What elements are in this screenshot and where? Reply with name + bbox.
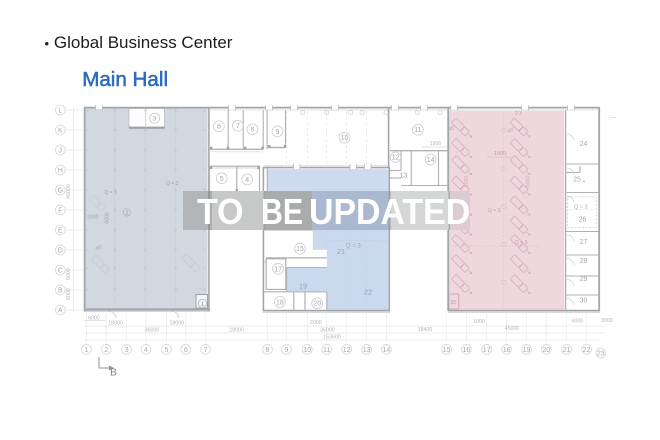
svg-text:E: E — [58, 228, 63, 235]
svg-text:24: 24 — [580, 141, 588, 148]
svg-text:G: G — [58, 188, 63, 195]
svg-text:1000: 1000 — [473, 319, 485, 325]
svg-text:10: 10 — [303, 347, 311, 354]
svg-text:Q = 3: Q = 3 — [105, 190, 118, 196]
svg-text:20: 20 — [313, 301, 321, 308]
svg-text:F: F — [58, 208, 62, 215]
svg-text:Q = 3: Q = 3 — [515, 240, 528, 246]
svg-text:15: 15 — [296, 246, 304, 253]
svg-text:10: 10 — [341, 135, 349, 142]
svg-text:6000: 6000 — [66, 288, 72, 300]
svg-text:3000: 3000 — [601, 318, 613, 324]
svg-text:9: 9 — [285, 347, 289, 354]
svg-text:29: 29 — [580, 276, 588, 283]
svg-text:D: D — [58, 248, 63, 255]
svg-text:B: B — [58, 288, 63, 295]
svg-text:30: 30 — [580, 298, 588, 305]
svg-text:2: 2 — [104, 347, 108, 354]
svg-text:Q = 3: Q = 3 — [166, 181, 179, 187]
svg-text:20: 20 — [542, 347, 550, 354]
svg-text:2 3: 2 3 — [515, 111, 522, 117]
svg-text:8: 8 — [251, 127, 255, 134]
svg-text:2: 2 — [125, 211, 128, 217]
svg-text:14: 14 — [383, 347, 391, 354]
svg-text:6000: 6000 — [88, 316, 100, 322]
svg-text:6000: 6000 — [66, 268, 72, 280]
svg-text:19: 19 — [299, 282, 307, 291]
svg-text:21: 21 — [563, 347, 571, 354]
svg-text:45000: 45000 — [505, 326, 520, 332]
svg-text:18000: 18000 — [169, 321, 184, 327]
svg-text:4: 4 — [245, 177, 249, 184]
svg-text:6000: 6000 — [464, 176, 470, 187]
svg-text:2000: 2000 — [87, 215, 99, 221]
svg-text:1: 1 — [201, 301, 205, 308]
svg-text:18: 18 — [503, 347, 511, 354]
svg-text:19: 19 — [523, 347, 531, 354]
svg-text:3: 3 — [153, 116, 157, 123]
svg-text:C: C — [58, 268, 63, 275]
svg-text:18000: 18000 — [229, 327, 244, 333]
svg-text:12: 12 — [392, 155, 400, 162]
svg-text:1900: 1900 — [430, 141, 442, 147]
svg-text:26: 26 — [579, 217, 587, 224]
svg-text:K: K — [58, 128, 63, 135]
svg-text:Q = 3: Q = 3 — [574, 205, 588, 211]
svg-text:6000: 6000 — [572, 319, 584, 325]
svg-text:5: 5 — [220, 176, 224, 183]
svg-text:18000: 18000 — [108, 321, 123, 327]
svg-text:8: 8 — [266, 347, 270, 354]
svg-text:15: 15 — [443, 347, 451, 354]
svg-text:16: 16 — [463, 347, 471, 354]
svg-text:5: 5 — [164, 347, 168, 354]
svg-text:25: 25 — [573, 177, 581, 184]
svg-text:153600: 153600 — [323, 335, 341, 341]
svg-text:A: A — [58, 308, 63, 315]
svg-text:L: L — [58, 108, 62, 115]
svg-text:32: 32 — [451, 300, 457, 306]
svg-text:6: 6 — [217, 124, 221, 131]
svg-text:22: 22 — [364, 288, 372, 297]
svg-text:21: 21 — [337, 247, 345, 256]
svg-text:J: J — [59, 148, 63, 155]
svg-text:13: 13 — [400, 173, 408, 180]
svg-text:B: B — [110, 367, 117, 379]
svg-text:40000: 40000 — [66, 184, 72, 199]
svg-text:18: 18 — [276, 299, 284, 306]
svg-text:6: 6 — [184, 347, 188, 354]
svg-text:18400: 18400 — [418, 327, 433, 333]
svg-text:14: 14 — [427, 157, 435, 164]
svg-text:13: 13 — [363, 347, 371, 354]
svg-text:9: 9 — [276, 129, 280, 136]
svg-text:3: 3 — [125, 347, 129, 354]
svg-text:6000: 6000 — [105, 212, 111, 223]
svg-text:36000: 36000 — [320, 327, 335, 333]
svg-text:1: 1 — [84, 347, 88, 354]
svg-text:Q = 3: Q = 3 — [346, 244, 362, 250]
svg-text:23: 23 — [597, 351, 605, 358]
svg-text:2000: 2000 — [310, 320, 322, 326]
svg-text:H: H — [58, 168, 63, 175]
svg-text:12: 12 — [343, 347, 351, 354]
svg-text:28: 28 — [580, 258, 588, 265]
svg-text:Q = 3: Q = 3 — [488, 208, 501, 214]
svg-text:1900: 1900 — [494, 151, 506, 157]
svg-text:4: 4 — [144, 347, 148, 354]
svg-text:11: 11 — [414, 127, 421, 134]
svg-text:6000: 6000 — [526, 176, 532, 187]
svg-text:27: 27 — [580, 239, 588, 246]
svg-text:36000: 36000 — [145, 327, 160, 333]
svg-text:17: 17 — [274, 266, 282, 273]
svg-text:7: 7 — [204, 347, 208, 354]
svg-text:7: 7 — [236, 123, 240, 130]
svg-text:22: 22 — [583, 347, 591, 354]
svg-text:11: 11 — [323, 347, 330, 354]
svg-text:17: 17 — [483, 347, 491, 354]
